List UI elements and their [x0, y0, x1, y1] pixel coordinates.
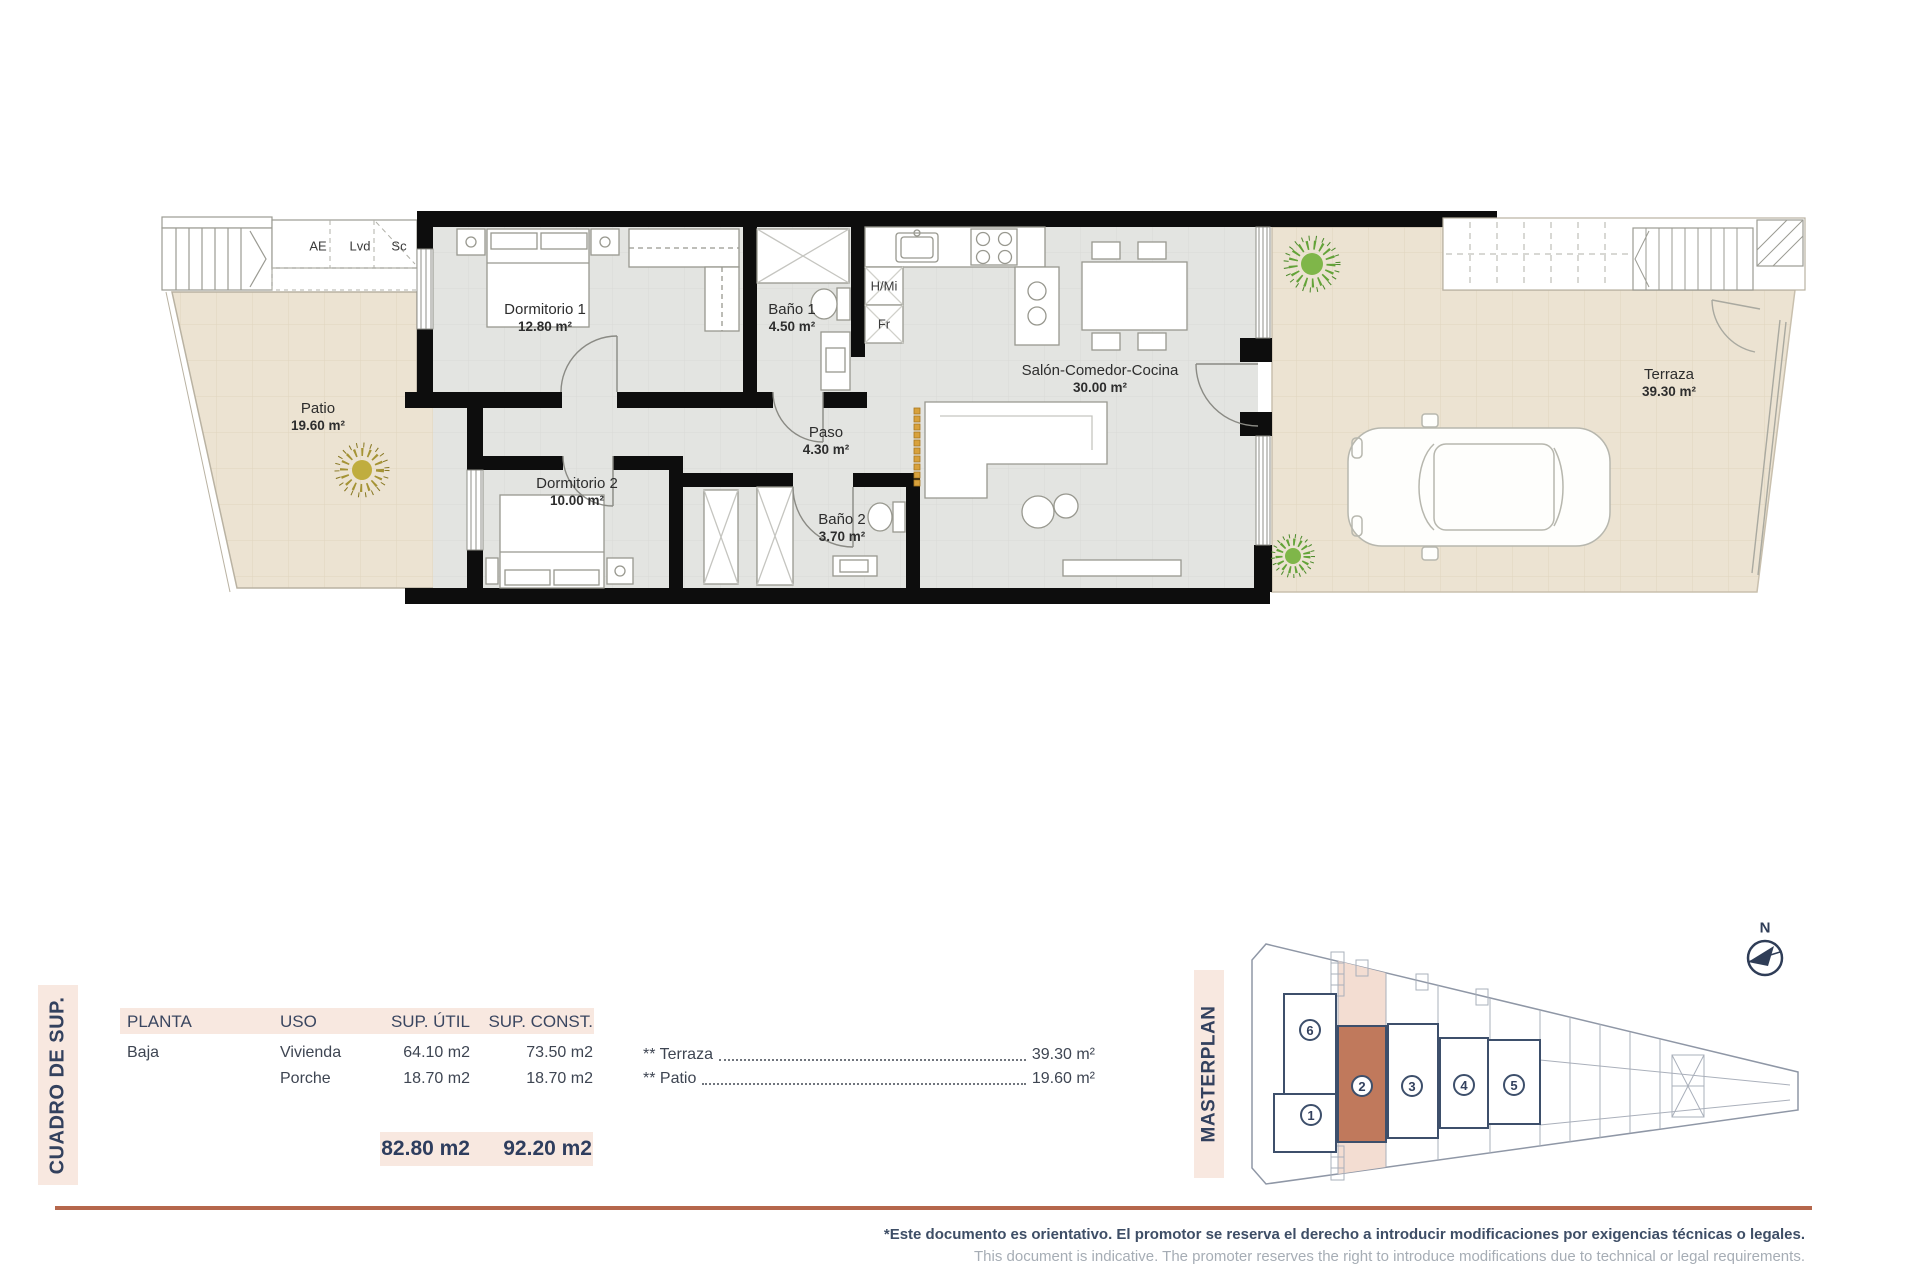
- dotted-leader: [702, 1082, 1025, 1085]
- room-label-patio: Patio 19.60 m²: [291, 400, 345, 434]
- cuadro-side-label: CUADRO DE SUP.: [38, 985, 78, 1185]
- pergola-strip: [1443, 218, 1805, 290]
- closet-label-lvd: Lvd: [350, 239, 371, 254]
- col-header-sup-util: SUP. ÚTIL: [370, 1012, 470, 1032]
- extra-patio-row: ** Patio 19.60 m²: [643, 1068, 1095, 1088]
- dotted-leader: [719, 1058, 1026, 1061]
- disclaimer-en: This document is indicative. The promote…: [884, 1246, 1805, 1268]
- stairs-top-left-icon: [162, 217, 272, 290]
- room-label-bano2: Baño 2 3.70 m²: [818, 511, 866, 545]
- north-compass-icon: [1748, 941, 1782, 975]
- room-label-paso: Paso 4.30 m²: [803, 424, 850, 458]
- total-sup-const: 92.20 m2: [482, 1137, 592, 1161]
- masterplan-unit-4: 4: [1453, 1074, 1475, 1096]
- closet-strip: [272, 220, 417, 290]
- extra-terraza-row: ** Terraza 39.30 m²: [643, 1044, 1095, 1064]
- floorplan-sheet: Patio 19.60 m² Dormitorio 1 12.80 m² Dor…: [0, 0, 1920, 1280]
- car-icon: [1348, 414, 1610, 560]
- room-label-terraza: Terraza 39.30 m²: [1642, 366, 1696, 400]
- col-header-planta: PLANTA: [127, 1012, 192, 1032]
- room-label-dormitorio2: Dormitorio 2 10.00 m²: [536, 475, 618, 509]
- table-row: Porche 18.70 m2 18.70 m2: [120, 1070, 594, 1092]
- room-label-salon: Salón-Comedor-Cocina 30.00 m²: [1022, 362, 1179, 396]
- masterplan-side-label: MASTERPLAN: [1194, 970, 1224, 1178]
- appliance-label-hmi: H/Mi: [871, 279, 898, 294]
- table-row: Baja Vivienda 64.10 m2 73.50 m2: [120, 1044, 594, 1066]
- closet-label-ae: AE: [309, 239, 326, 254]
- masterplan-unit-6: 6: [1299, 1019, 1321, 1041]
- col-header-uso: USO: [280, 1012, 317, 1032]
- masterplan-diagram: [1252, 944, 1798, 1184]
- closet-label-sc: Sc: [391, 239, 406, 254]
- masterplan-unit-2: 2: [1351, 1075, 1373, 1097]
- masterplan-unit-1: 1: [1300, 1104, 1322, 1126]
- room-label-dormitorio1: Dormitorio 1 12.80 m²: [504, 301, 586, 335]
- room-label-bano1: Baño 1 4.50 m²: [768, 301, 816, 335]
- col-header-sup-const: SUP. CONST.: [483, 1012, 593, 1032]
- total-sup-util: 82.80 m2: [370, 1137, 470, 1161]
- disclaimer-es: *Este documento es orientativo. El promo…: [884, 1224, 1805, 1246]
- table-totals-row: 82.80 m2 92.20 m2: [380, 1132, 593, 1166]
- appliance-label-fr: Fr: [878, 317, 890, 332]
- disclaimer: *Este documento es orientativo. El promo…: [884, 1224, 1805, 1268]
- table-header-row: PLANTA USO SUP. ÚTIL SUP. CONST.: [120, 1008, 594, 1034]
- north-label: N: [1760, 920, 1771, 937]
- footer-separator: [55, 1206, 1812, 1210]
- masterplan-unit-3: 3: [1401, 1075, 1423, 1097]
- masterplan-unit-5: 5: [1503, 1074, 1525, 1096]
